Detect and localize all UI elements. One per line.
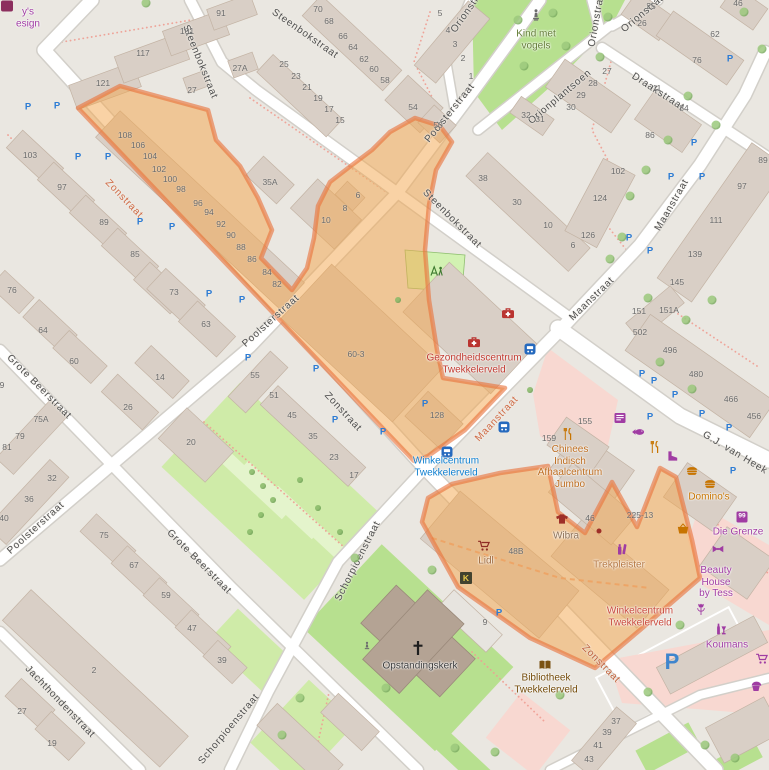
parking-icon: P (75, 152, 81, 163)
tree-icon (664, 136, 673, 145)
poi-beauty-house: BeautyHouseby Tess (699, 565, 733, 600)
tree-icon (701, 741, 710, 750)
tree-icon (604, 13, 613, 22)
street-label: Schorpioenstraat (196, 692, 261, 767)
memorial-icon (532, 9, 541, 21)
seafood-icon (632, 428, 645, 436)
shopgen-icon (1, 1, 13, 12)
house-number: 21 (302, 82, 311, 92)
parking-icon: P (169, 222, 175, 233)
house-number: 90 (226, 230, 235, 240)
house-number: 67 (129, 560, 138, 570)
house-number: 75A (33, 414, 48, 424)
tree-icon (606, 255, 615, 264)
house-number: 100 (163, 174, 177, 184)
house-number: 59 (161, 590, 170, 600)
tree-icon (758, 45, 767, 54)
poi-label-line: vogels (516, 40, 555, 52)
house-number: 124 (593, 193, 607, 203)
parking-icon: P (332, 415, 338, 426)
poi-label-line: Winkelcentrum (413, 456, 479, 468)
street-label: Maanstraat (567, 275, 616, 323)
house-number: 19 (47, 738, 56, 748)
poi-label-line: Twekkelerveld (426, 364, 521, 376)
chemist-icon (617, 543, 627, 555)
parking-icon: P (639, 369, 645, 380)
house-number: 26 (123, 402, 132, 412)
house-number: 82 (272, 279, 281, 289)
house-number: 31 (535, 114, 544, 124)
house-number: 1 (469, 71, 474, 81)
parking-icon: P (647, 412, 653, 423)
tree-icon (708, 296, 717, 305)
tshirt-icon (556, 514, 569, 524)
parking-icon: P (25, 102, 31, 113)
house-number: 15 (335, 115, 344, 125)
house-number: 29 (576, 90, 585, 100)
tree-icon (549, 9, 558, 18)
parking-icon: P (496, 608, 502, 619)
house-number: 155 (578, 416, 592, 426)
tree-icon (278, 731, 287, 740)
tree-icon (682, 316, 691, 325)
tree-icon (656, 358, 665, 367)
tree-icon (260, 483, 266, 489)
house-number: 89 (99, 217, 108, 227)
house-number: 81 (2, 442, 11, 452)
house-number: 96 (193, 198, 202, 208)
house-number: 54 (408, 102, 417, 112)
florist-icon (696, 603, 706, 615)
house-number: 28 (588, 78, 597, 88)
poi-label-line: Twekkelerveld (514, 684, 577, 696)
house-number: 48B (508, 546, 523, 556)
house-number: 2 (461, 53, 466, 63)
parking-icon: P (691, 138, 697, 149)
house-number: 68 (324, 16, 333, 26)
map-canvas[interactable]: SteenbokstraatSteenbokstraatSteenbokstra… (0, 0, 769, 770)
tree-icon (258, 512, 264, 518)
poi-label-line: Chinees (538, 444, 602, 456)
poi-label-line: Twekkelerveld (607, 617, 673, 629)
variety-icon: 99 (737, 512, 748, 523)
restaurant-icon (650, 441, 660, 453)
house-number: 466 (724, 394, 738, 404)
poi-label-line: Lidl (478, 555, 494, 567)
house-number: 27 (17, 706, 26, 716)
street-label: Zonstraat (322, 390, 364, 434)
house-number: 6 (356, 190, 361, 200)
house-number: 66 (338, 31, 347, 41)
street-label: Grote Beerstraat (4, 352, 73, 421)
house-number: 62 (359, 54, 368, 64)
parking-icon: P (626, 233, 632, 244)
house-number: 39 (217, 655, 226, 665)
house-number: 14 (155, 372, 164, 382)
house-number: 76 (7, 285, 16, 295)
tree-icon (451, 744, 460, 753)
doctor-icon (468, 337, 480, 348)
house-number: 98 (176, 184, 185, 194)
parking-icon: P (726, 423, 732, 434)
street-label: Zonstraat (580, 643, 623, 686)
house-number: 17 (349, 470, 358, 480)
bus-icon (499, 422, 510, 433)
house-number: 26 (637, 18, 646, 28)
tree-icon (642, 166, 651, 175)
house-number: 88 (236, 242, 245, 252)
books-icon (539, 660, 552, 670)
house-number: 4 (446, 25, 451, 35)
street-label: Poolsterstraat (5, 500, 67, 557)
poi-label-line: Domino's (688, 491, 729, 503)
house-number: 91 (216, 8, 225, 18)
house-number: 25 (646, 1, 655, 11)
poi-trekpleister: Trekpleister (593, 559, 645, 571)
house-number: 63 (201, 319, 210, 329)
house-number: 6 (571, 240, 576, 250)
tree-icon (712, 121, 721, 130)
house-number: 64 (38, 325, 47, 335)
poi-label-line: Wibra (553, 530, 579, 542)
parking-icon: P (668, 172, 674, 183)
house-number: 159 (542, 433, 556, 443)
house-number: 139 (688, 249, 702, 259)
house-number: 79 (15, 431, 24, 441)
parking-icon: P (137, 217, 143, 228)
dot-icon (596, 528, 602, 534)
street-label: Jachthondenstraat (23, 664, 98, 741)
cart-r-icon (478, 541, 491, 552)
house-number: 496 (663, 345, 677, 355)
house-number: 64 (348, 42, 357, 52)
poi-label-line: Winkelcentrum (607, 606, 673, 618)
tree-icon (514, 16, 523, 25)
house-number: 85 (130, 249, 139, 259)
house-number: 46 (733, 0, 742, 8)
tree-icon (296, 694, 305, 703)
poi-label-line: Jumbo (538, 479, 602, 491)
fastfood-icon (704, 480, 716, 489)
poi-label-line: Beauty (699, 565, 733, 577)
tree-icon (626, 192, 635, 201)
house-number: 89 (758, 155, 767, 165)
house-number: 60-3 (347, 349, 364, 359)
convenience-icon (677, 524, 689, 535)
newsagent-icon (615, 413, 626, 423)
confectionery-icon (751, 681, 762, 691)
tree-icon (249, 469, 255, 475)
tree-icon (395, 297, 401, 303)
poi-bibliotheek: BibliotheekTwekkelerveld (514, 673, 577, 696)
street-label: Poolsterstraat (423, 81, 477, 145)
house-number: 108 (118, 130, 132, 140)
house-number: 480 (689, 369, 703, 379)
tree-icon (740, 8, 749, 17)
poi-winkelcentrum-mall: WinkelcentrumTwekkelerveld (607, 606, 673, 629)
house-number: 70 (313, 4, 322, 14)
restaurant-icon (563, 428, 573, 440)
playground-icon (430, 266, 444, 277)
house-number: 92 (216, 219, 225, 229)
poi-label-line: Koumans (706, 639, 748, 651)
poi-label-line: Kind met (516, 29, 555, 41)
tree-icon (688, 385, 697, 394)
tree-icon (247, 529, 253, 535)
poi-bus-stop-name: WinkelcentrumTwekkelerveld (413, 456, 479, 479)
house-number: 5 (438, 8, 443, 18)
parking-icon: P (54, 101, 60, 112)
house-number: 73 (169, 287, 178, 297)
house-number: 86 (247, 254, 256, 264)
house-number: 30 (566, 102, 575, 112)
house-number: 456 (747, 411, 761, 421)
house-number: 151A (659, 305, 679, 315)
house-number: 8 (343, 203, 348, 213)
tree-icon (684, 92, 693, 101)
house-number: 117 (136, 48, 150, 58)
street-label: Maanstraat (473, 394, 521, 444)
house-number: 76 (692, 55, 701, 65)
house-number: 25 (279, 59, 288, 69)
shoes-icon (666, 451, 678, 461)
house-number: 3 (453, 39, 458, 49)
house-number: 9 (483, 617, 488, 627)
poi-label-line: Die Grenze (713, 526, 764, 538)
house-number: 102 (152, 164, 166, 174)
house-number: 30 (512, 197, 521, 207)
parking-icon: P (313, 364, 319, 375)
poi-kind-met-vogels: Kind metvogels (516, 29, 555, 52)
house-number: 151 (632, 306, 646, 316)
street-label: Steenbokstraat (420, 187, 483, 250)
poi-label-line: Twekkelerveld (413, 467, 479, 479)
tree-icon (644, 294, 653, 303)
house-number: 101 (180, 26, 194, 36)
icon-badge: K (460, 572, 472, 584)
house-number: 51 (269, 390, 278, 400)
parking-icon: P (699, 409, 705, 420)
house-number: 86 (645, 130, 654, 140)
tree-icon (382, 684, 391, 693)
house-number: 106 (131, 140, 145, 150)
poi-wibra: Wibra (553, 530, 579, 542)
house-number: 17 (324, 104, 333, 114)
house-number: 10 (543, 220, 552, 230)
parking-icon: P (651, 376, 657, 387)
house-number: 27 (602, 66, 611, 76)
house-number: 27 (187, 85, 196, 95)
tree-icon (297, 477, 303, 483)
house-number: 32 (521, 110, 530, 120)
house-number: 502 (633, 327, 647, 337)
street-label: Grote Beerstraat (164, 527, 233, 596)
poi-label-line: Afhaalcentrum (538, 467, 602, 479)
street-label: Orionstraat (587, 0, 608, 48)
parking-icon: P (245, 353, 251, 364)
house-number: 126 (581, 230, 595, 240)
parking-icon: P (730, 466, 736, 477)
tree-icon (142, 0, 151, 8)
icon-badge: 99 (737, 512, 748, 523)
poi-label-line: House (699, 576, 733, 588)
tree-icon (270, 497, 276, 503)
parking-icon: P (380, 427, 386, 438)
parking-icon: P (647, 246, 653, 257)
tree-icon (351, 554, 360, 563)
house-number: 27A (232, 63, 247, 73)
street-label: Orionstraat (449, 0, 491, 35)
house-number: 60 (69, 356, 78, 366)
house-number: 35 (308, 431, 317, 441)
tree-icon (644, 688, 653, 697)
poi-label-line: by Tess (699, 588, 733, 600)
tree-icon (676, 621, 685, 630)
poi-label-line: y's (16, 7, 40, 19)
house-number: 121 (96, 78, 110, 88)
alcohol-icon (716, 623, 727, 635)
poi-topleft-shop: y'sesign (16, 7, 40, 30)
parking-icon: P (672, 390, 678, 401)
house-number: 225-13 (627, 510, 653, 520)
poi-die-grenze: Die Grenze (713, 526, 764, 538)
house-number: 37 (611, 716, 620, 726)
parking-icon: P (239, 295, 245, 306)
house-number: 128 (430, 410, 444, 420)
house-number: 102 (611, 166, 625, 176)
house-number: 111 (710, 215, 723, 225)
parking-lot-icon: P (665, 649, 680, 675)
poi-dominos: Domino's (688, 491, 729, 503)
house-number: 20 (186, 437, 195, 447)
map-labels-layer: SteenbokstraatSteenbokstraatSteenbokstra… (0, 0, 769, 770)
house-number: 84 (679, 103, 688, 113)
house-number: 23 (329, 452, 338, 462)
poi-label-line: esign (16, 18, 40, 30)
house-number: 9 (0, 380, 4, 390)
house-number: 2 (92, 665, 97, 675)
tree-icon (618, 233, 627, 242)
house-number: 94 (204, 207, 213, 217)
house-number: 97 (57, 182, 66, 192)
parking-icon: P (422, 399, 428, 410)
house-number: 19 (313, 93, 322, 103)
poi-label-line: Trekpleister (593, 559, 645, 571)
parking-icon: P (206, 289, 212, 300)
tree-icon (315, 505, 321, 511)
house-number: 23 (291, 71, 300, 81)
parking-icon: P (727, 54, 733, 65)
parking-icon: P (105, 152, 111, 163)
house-number: 40 (0, 513, 9, 523)
house-number: 36 (24, 494, 33, 504)
house-number: 55 (250, 370, 259, 380)
poi-lidl: Lidl (478, 555, 494, 567)
tree-icon (596, 53, 605, 62)
house-number: 32 (47, 473, 56, 483)
house-number: 103 (23, 150, 37, 160)
house-number: 43 (584, 754, 593, 764)
street-label: Zonstraat (103, 177, 145, 220)
tree-icon (491, 748, 500, 757)
house-number: 45 (287, 410, 296, 420)
beauty-icon (712, 545, 725, 553)
house-number: 75 (99, 530, 108, 540)
poi-label-line: Gezondheidscentrum (426, 353, 521, 365)
poi-gezondheidscentrum: GezondheidscentrumTwekkelerveld (426, 353, 521, 376)
poi-chinees-afhaalcentrum: ChineesIndischAfhaalcentrumJumbo (538, 444, 602, 490)
house-number: 47 (187, 623, 196, 633)
house-number: 38 (478, 173, 487, 183)
house-number: 60 (369, 64, 378, 74)
tree-icon (428, 566, 437, 575)
street-label: Maanstraat (653, 177, 692, 233)
house-number: 62 (710, 29, 719, 39)
house-number: 97 (737, 181, 746, 191)
house-number: 58 (380, 75, 389, 85)
tree-icon (527, 387, 533, 393)
tree-icon (562, 42, 571, 51)
house-number: 84 (262, 267, 271, 277)
house-number: 145 (670, 277, 684, 287)
house-number: 41 (593, 740, 602, 750)
tree-icon (731, 754, 740, 763)
poi-label-line: Bibliotheek (514, 673, 577, 685)
tree-icon (337, 529, 343, 535)
house-number: 50 (433, 120, 442, 130)
house-number: 11 (653, 83, 662, 93)
poi-label-line: Indisch (538, 456, 602, 468)
parking-icon: P (699, 172, 705, 183)
house-number: 104 (143, 151, 157, 161)
house-number: 10 (321, 215, 330, 225)
artwork-icon (364, 642, 371, 651)
house-number: 35A (262, 177, 277, 187)
kioskk-icon: K (460, 572, 472, 584)
cross-icon (413, 641, 424, 655)
street-label: Poolsterstraat (240, 293, 302, 350)
fastfood-icon (686, 467, 698, 476)
house-number: 46 (585, 513, 594, 523)
poi-label-line: Opstandingskerk (382, 660, 457, 672)
cart-p-icon (756, 654, 769, 665)
house-number: 39 (602, 727, 611, 737)
bus-icon (525, 344, 536, 355)
doctor-icon (502, 308, 514, 319)
poi-opstandingskerk: Opstandingskerk (382, 660, 457, 672)
poi-koumans: Koumans (706, 639, 748, 651)
tree-icon (520, 62, 529, 71)
